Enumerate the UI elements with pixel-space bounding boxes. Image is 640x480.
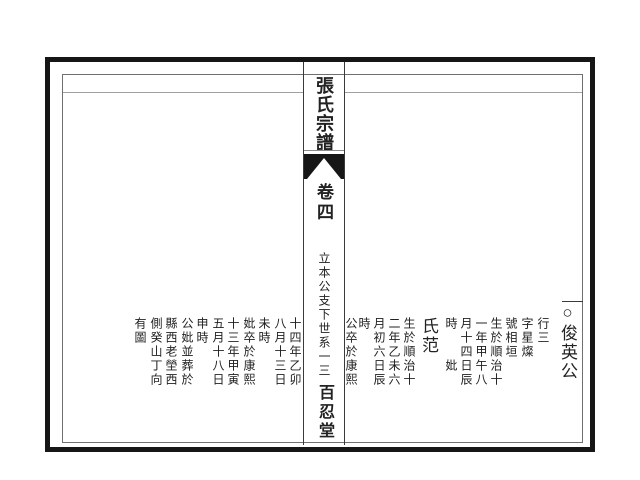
volume-label: 卷四	[315, 183, 332, 223]
spine-column-left-line	[303, 62, 304, 445]
spine-column-right-line	[344, 62, 345, 445]
text-column: 生於順治十	[490, 317, 502, 387]
text-column: 時 妣	[445, 317, 457, 373]
fishtail-top-rule	[304, 150, 344, 151]
consort-surname: 氏范	[420, 317, 437, 355]
genealogy-book-page: 張氏宗譜 卷四 立本公支下世系 一三 百忍堂 ○俊英公 氏范 行三字星燦號相垣生…	[0, 0, 640, 480]
text-column: 妣卒於康熙	[243, 317, 255, 387]
fishtail-notch	[307, 158, 341, 179]
text-column: 十四年乙卯	[289, 317, 301, 387]
book-title: 張氏宗譜	[315, 76, 333, 152]
page-number: 一三	[318, 350, 330, 378]
text-column: 申時	[196, 317, 208, 345]
ancestor-entry-name: ○俊英公	[559, 303, 576, 381]
text-column: 月初六日辰	[373, 317, 385, 387]
text-column: 字星燦	[521, 317, 533, 359]
header-rule-left-page	[63, 92, 303, 93]
text-column: 八月十三日	[274, 317, 286, 387]
entry-separator-rule	[562, 301, 583, 302]
text-column: 時	[358, 317, 370, 331]
text-column: 號相垣	[505, 317, 517, 359]
header-rule-right-page	[345, 92, 582, 93]
text-column: 行三	[537, 317, 549, 345]
text-column: 月十四日辰	[460, 317, 472, 387]
text-column: 有圖	[134, 317, 146, 345]
text-column: 一年甲午八	[475, 317, 487, 387]
text-column: 縣西老塋西	[165, 317, 177, 387]
section-label: 立本公支下世系	[318, 252, 330, 350]
text-column: 公卒於康熙	[345, 317, 357, 387]
text-column: 生於順治十	[403, 317, 415, 387]
text-column: 十三年甲寅	[227, 317, 239, 387]
fishtail-printers-mark-icon	[304, 154, 344, 179]
text-column: 公妣並葬於	[181, 317, 193, 387]
text-column: 未時	[258, 317, 270, 345]
text-column: 二年乙未六	[388, 317, 400, 387]
text-column: 五月十八日	[212, 317, 224, 387]
hall-name: 百忍堂	[316, 384, 332, 441]
text-column: 側癸山丁向	[150, 317, 162, 387]
